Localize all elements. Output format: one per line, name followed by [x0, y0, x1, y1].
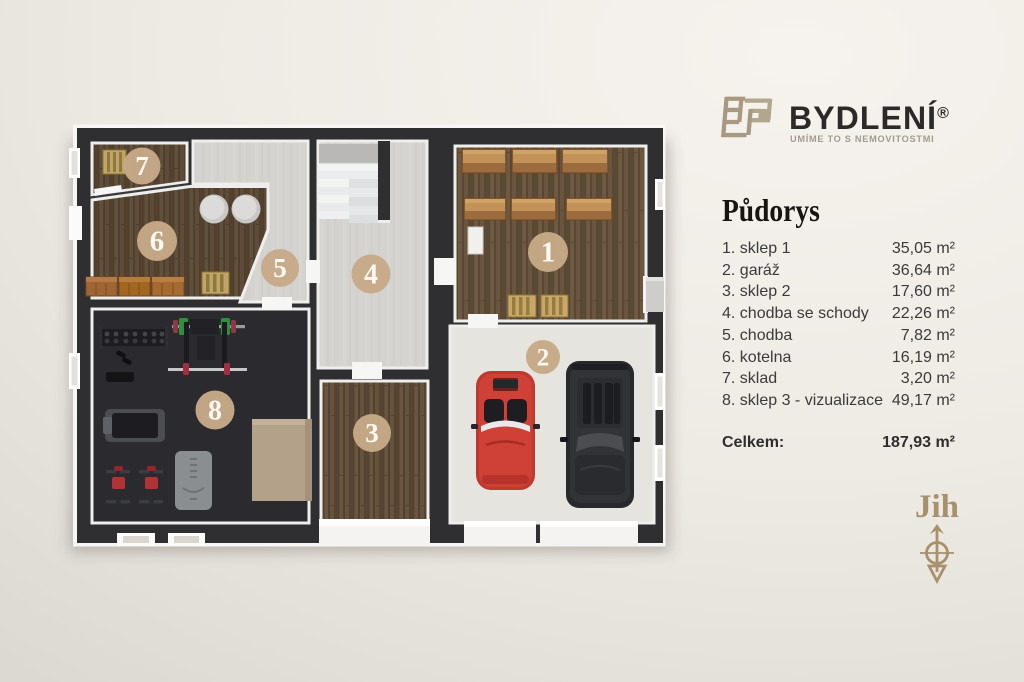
svg-text:8: 8 [208, 396, 222, 427]
svg-text:3: 3 [365, 418, 379, 448]
svg-text:6: 6 [150, 226, 165, 258]
svg-text:5: 5 [273, 253, 287, 283]
svg-text:1: 1 [541, 237, 556, 269]
svg-text:7: 7 [135, 151, 149, 181]
svg-text:4: 4 [364, 260, 378, 291]
svg-text:2: 2 [537, 345, 550, 372]
